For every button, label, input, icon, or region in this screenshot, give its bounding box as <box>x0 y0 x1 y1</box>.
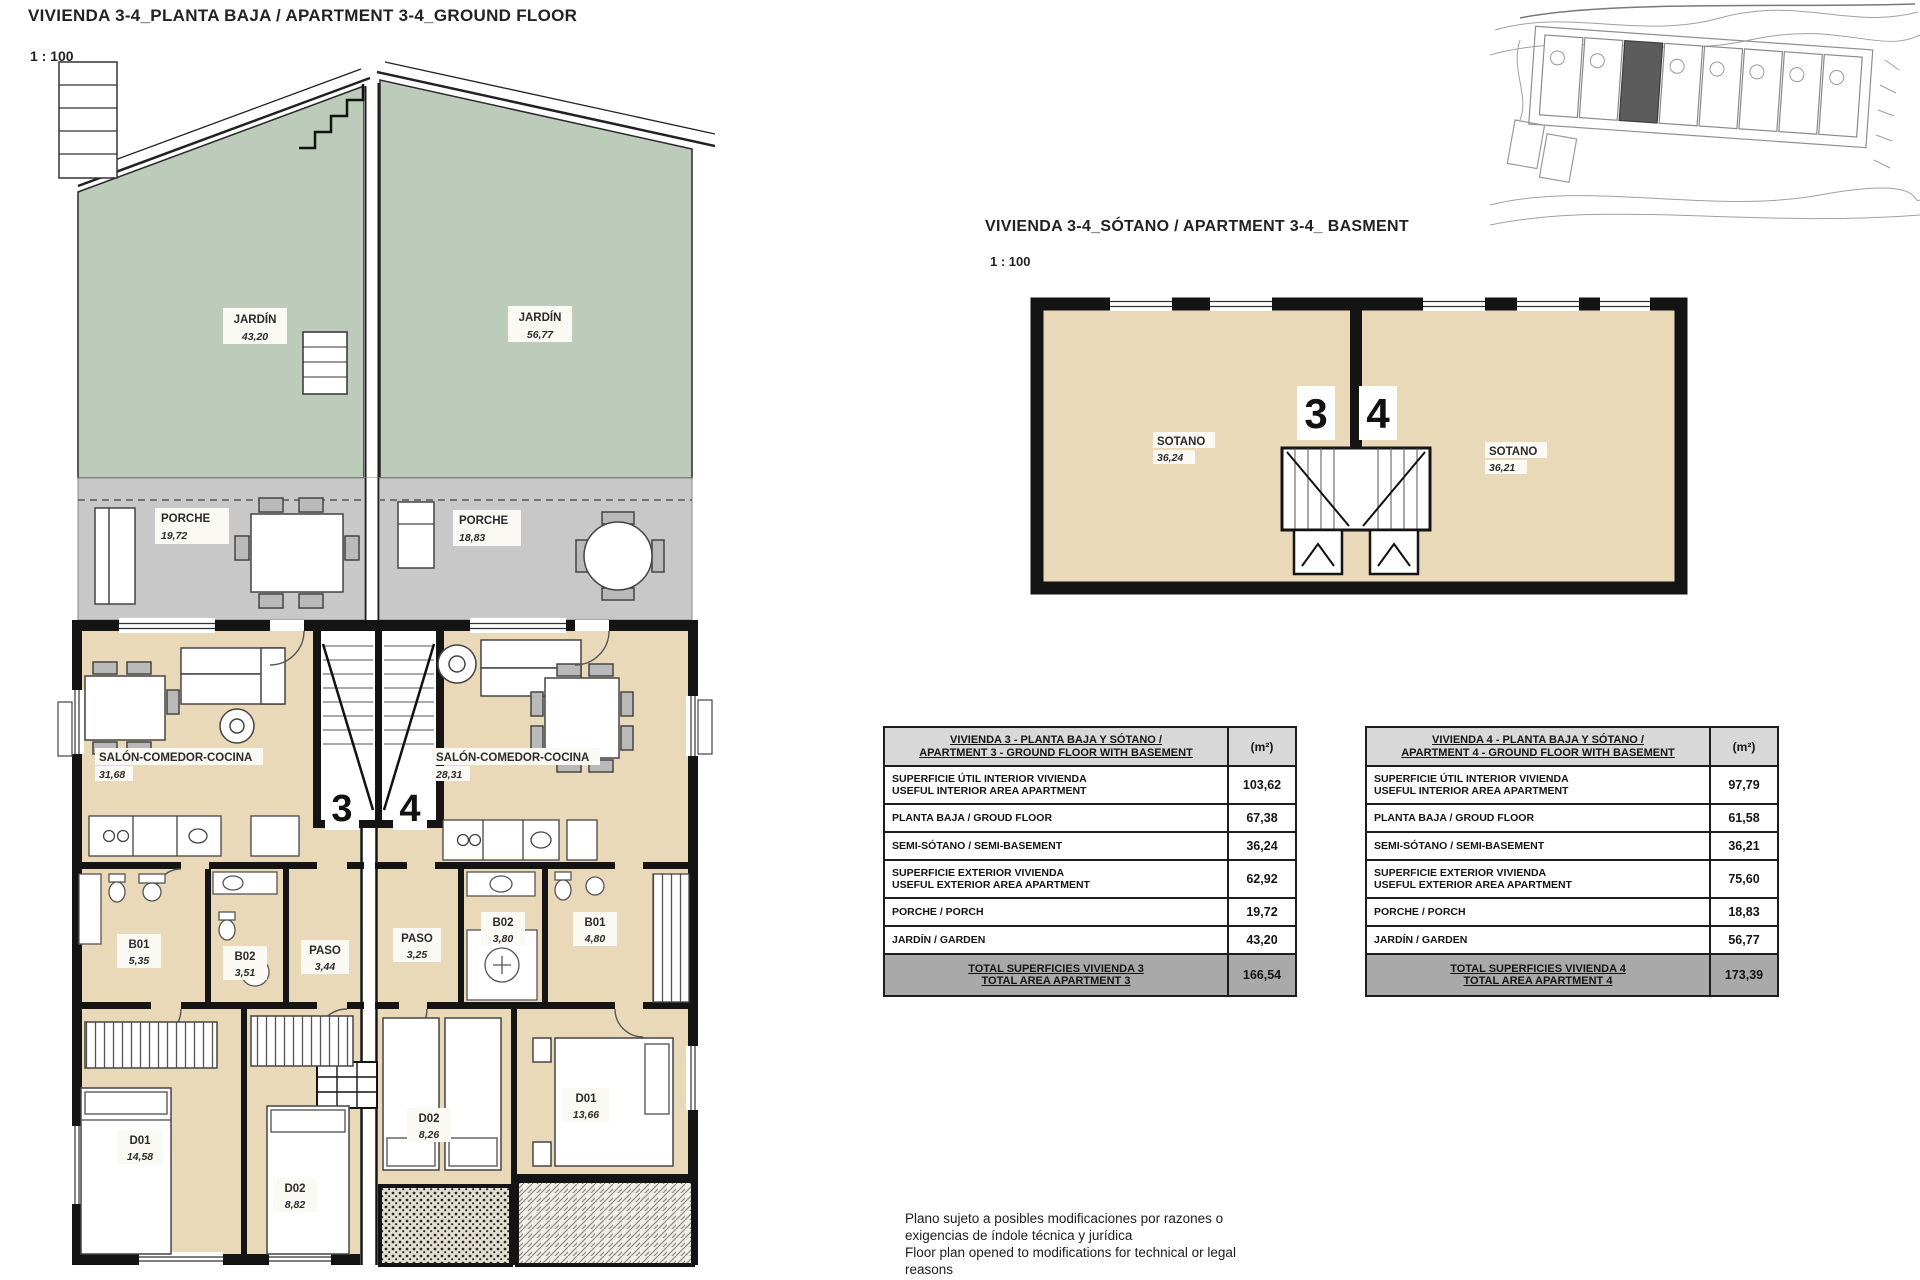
area-table-vivienda-4: VIVIENDA 4 - PLANTA BAJA Y SÓTANO / APAR… <box>1365 726 1779 997</box>
kitchen-left <box>89 816 299 856</box>
garden-right-zone <box>380 80 692 478</box>
row-value: 36,24 <box>1227 833 1295 859</box>
ground-floor-title: VIVIENDA 3-4_PLANTA BAJA / APARTMENT 3-4… <box>28 6 577 26</box>
basement-title: VIVIENDA 3-4_SÓTANO / APARTMENT 3-4_ BAS… <box>985 218 1409 236</box>
b01-left-area: 5,35 <box>129 955 150 967</box>
basement-plan: 3 4 SOTANO 36,24 SOTANO 36,21 <box>1025 290 1695 605</box>
salon-right-name: SALÓN-COMEDOR-COCINA <box>436 751 589 764</box>
total-label2: TOTAL AREA APARTMENT 3 <box>982 975 1131 988</box>
row-label: PLANTA BAJA / GROUD FLOOR <box>892 812 1220 825</box>
total-label2: TOTAL AREA APARTMENT 4 <box>1464 975 1613 988</box>
row-label2: USEFUL INTERIOR AREA APARTMENT <box>892 785 1220 798</box>
kitchen-right <box>443 820 597 860</box>
highlighted-plot <box>1619 41 1662 123</box>
row-label2: USEFUL INTERIOR AREA APARTMENT <box>1374 785 1702 798</box>
garden-right-area: 56,77 <box>527 329 554 341</box>
disclaimer-line3: Floor plan opened to modifications for t… <box>905 1244 1285 1261</box>
plot-row <box>1529 26 1873 147</box>
garden-left-name: JARDÍN <box>234 313 277 326</box>
d01-right-area: 13,66 <box>573 1109 599 1121</box>
basement-unit-3-number: 3 <box>1304 390 1327 437</box>
porch-right-name: PORCHE <box>459 515 509 527</box>
drawing-sheet: VIVIENDA 3-4_PLANTA BAJA / APARTMENT 3-4… <box>0 0 1920 1280</box>
table4-unit: (m²) <box>1709 728 1777 765</box>
row-label: SEMI-SÓTANO / SEMI-BASEMENT <box>892 840 1220 853</box>
site-location-map <box>1490 0 1920 230</box>
garden-left-area: 43,20 <box>241 331 268 343</box>
unit-3-number: 3 <box>331 788 352 830</box>
row-label: SUPERFICIE EXTERIOR VIVIENDA <box>1374 867 1702 880</box>
b02-left-area: 3,51 <box>235 967 256 979</box>
salon-right-area: 28,31 <box>435 769 462 781</box>
disclaimer-line2: exigencias de índole técnica y jurídica <box>905 1227 1285 1244</box>
total-value: 166,54 <box>1227 955 1295 995</box>
table3-header-line1: VIVIENDA 3 - PLANTA BAJA Y SÓTANO / <box>950 734 1162 747</box>
garden-right-label: JARDÍN 56,77 <box>508 306 572 342</box>
porch-left-label: PORCHE 19,72 <box>155 508 229 544</box>
salon-left-name: SALÓN-COMEDOR-COCINA <box>99 751 252 764</box>
porch-right-label: PORCHE 18,83 <box>453 510 521 546</box>
row-label: JARDÍN / GARDEN <box>1374 934 1702 947</box>
d02-right-area: 8,26 <box>419 1129 440 1141</box>
disclaimer-line1: Plano sujeto a posibles modificaciones p… <box>905 1210 1285 1227</box>
d01-left-area: 14,58 <box>127 1151 153 1163</box>
table-row: PORCHE / PORCH 19,72 <box>885 899 1295 927</box>
garden-left-zone <box>78 86 364 478</box>
d02-right-name: D02 <box>418 1113 439 1125</box>
area-table-vivienda-3: VIVIENDA 3 - PLANTA BAJA Y SÓTANO / APAR… <box>883 726 1297 997</box>
row-label2: USEFUL EXTERIOR AREA APARTMENT <box>892 879 1220 892</box>
row-label: SUPERFICIE ÚTIL INTERIOR VIVIENDA <box>1374 773 1702 786</box>
table3-total-row: TOTAL SUPERFICIES VIVIENDA 3 TOTAL AREA … <box>885 955 1295 995</box>
table-row: PORCHE / PORCH 18,83 <box>1367 899 1777 927</box>
row-value: 103,62 <box>1227 767 1295 803</box>
outbuildings <box>1506 120 1578 182</box>
paso-left-name: PASO <box>309 945 341 957</box>
row-value: 36,21 <box>1709 833 1777 859</box>
paso-right-area: 3,25 <box>407 949 428 961</box>
garden-left-label: JARDÍN 43,20 <box>223 308 287 344</box>
sotano-left-name: SOTANO <box>1157 436 1205 448</box>
table-row: JARDÍN / GARDEN 43,20 <box>885 927 1295 955</box>
exterior-stairs-topleft <box>59 62 117 178</box>
porch-left-dining-table <box>235 498 359 608</box>
row-value: 56,77 <box>1709 927 1777 953</box>
d02-left-area: 8,82 <box>285 1199 306 1211</box>
row-value: 18,83 <box>1709 899 1777 925</box>
sotano-right-area: 36,21 <box>1489 462 1515 474</box>
row-label2: USEFUL EXTERIOR AREA APARTMENT <box>1374 879 1702 892</box>
porch-right-area: 18,83 <box>459 532 485 544</box>
row-label: SUPERFICIE EXTERIOR VIVIENDA <box>892 867 1220 880</box>
porch-left-area: 19,72 <box>161 530 187 542</box>
table-row: SUPERFICIE ÚTIL INTERIOR VIVIENDAUSEFUL … <box>1367 767 1777 805</box>
b01-left-name: B01 <box>128 939 150 951</box>
row-value: 61,58 <box>1709 805 1777 831</box>
row-value: 67,38 <box>1227 805 1295 831</box>
total-value: 173,39 <box>1709 955 1777 995</box>
b02-right-name: B02 <box>492 917 513 929</box>
sotano-right-name: SOTANO <box>1489 446 1537 458</box>
b02-left-name: B02 <box>234 951 255 963</box>
d01-right-name: D01 <box>575 1093 597 1105</box>
total-label1: TOTAL SUPERFICIES VIVIENDA 3 <box>968 963 1144 976</box>
paso-right-name: PASO <box>401 933 433 945</box>
row-value: 75,60 <box>1709 861 1777 897</box>
porch-left-sofa <box>95 508 135 604</box>
table3-header-line2: APARTMENT 3 - GROUND FLOOR WITH BASEMENT <box>919 747 1193 760</box>
table-row: SUPERFICIE EXTERIOR VIVIENDAUSEFUL EXTER… <box>1367 861 1777 899</box>
table4-header-line1: VIVIENDA 4 - PLANTA BAJA Y SÓTANO / <box>1432 734 1644 747</box>
total-label1: TOTAL SUPERFICIES VIVIENDA 4 <box>1450 963 1626 976</box>
table3-header: VIVIENDA 3 - PLANTA BAJA Y SÓTANO / APAR… <box>885 728 1295 767</box>
row-label: SUPERFICIE ÚTIL INTERIOR VIVIENDA <box>892 773 1220 786</box>
row-label: PLANTA BAJA / GROUD FLOOR <box>1374 812 1702 825</box>
row-label: SEMI-SÓTANO / SEMI-BASEMENT <box>1374 840 1702 853</box>
terrace-hatched <box>380 1181 693 1265</box>
table3-unit: (m²) <box>1227 728 1295 765</box>
row-value: 97,79 <box>1709 767 1777 803</box>
table-row: SUPERFICIE EXTERIOR VIVIENDAUSEFUL EXTER… <box>885 861 1295 899</box>
row-label: PORCHE / PORCH <box>1374 906 1702 919</box>
row-value: 19,72 <box>1227 899 1295 925</box>
paso-left-area: 3,44 <box>315 961 336 973</box>
b02-right-area: 3,80 <box>493 933 514 945</box>
unit-4-number: 4 <box>399 788 420 830</box>
sotano-left-area: 36,24 <box>1157 452 1183 464</box>
ground-floor-plan: JARDÍN 43,20 JARDÍN 56,77 <box>55 50 715 1275</box>
basement-scale: 1 : 100 <box>990 254 1030 269</box>
d01-left-name: D01 <box>129 1135 151 1147</box>
disclaimer-line4: reasons <box>905 1261 1285 1278</box>
porch-right-sofa <box>398 502 434 568</box>
table-row: PLANTA BAJA / GROUD FLOOR 61,58 <box>1367 805 1777 833</box>
row-label: JARDÍN / GARDEN <box>892 934 1220 947</box>
b01-right-name: B01 <box>584 917 606 929</box>
basement-unit-4-number: 4 <box>1366 390 1390 437</box>
table4-header: VIVIENDA 4 - PLANTA BAJA Y SÓTANO / APAR… <box>1367 728 1777 767</box>
row-label: PORCHE / PORCH <box>892 906 1220 919</box>
disclaimer: Plano sujeto a posibles modificaciones p… <box>905 1210 1285 1278</box>
row-value: 43,20 <box>1227 927 1295 953</box>
garden-divider <box>364 83 380 478</box>
table-row: JARDÍN / GARDEN 56,77 <box>1367 927 1777 955</box>
garden-right-name: JARDÍN <box>519 311 562 324</box>
table4-header-line2: APARTMENT 4 - GROUND FLOOR WITH BASEMENT <box>1401 747 1675 760</box>
d02-left-name: D02 <box>284 1183 305 1195</box>
table-row: SUPERFICIE ÚTIL INTERIOR VIVIENDAUSEFUL … <box>885 767 1295 805</box>
b01-right-area: 4,80 <box>584 933 606 945</box>
table-row: SEMI-SÓTANO / SEMI-BASEMENT 36,21 <box>1367 833 1777 861</box>
table-row: SEMI-SÓTANO / SEMI-BASEMENT 36,24 <box>885 833 1295 861</box>
porch-left-name: PORCHE <box>161 513 211 525</box>
table4-total-row: TOTAL SUPERFICIES VIVIENDA 4 TOTAL AREA … <box>1367 955 1777 995</box>
garden-mid-stairs <box>303 332 347 394</box>
table-row: PLANTA BAJA / GROUD FLOOR 67,38 <box>885 805 1295 833</box>
salon-left-area: 31,68 <box>99 769 125 781</box>
row-value: 62,92 <box>1227 861 1295 897</box>
